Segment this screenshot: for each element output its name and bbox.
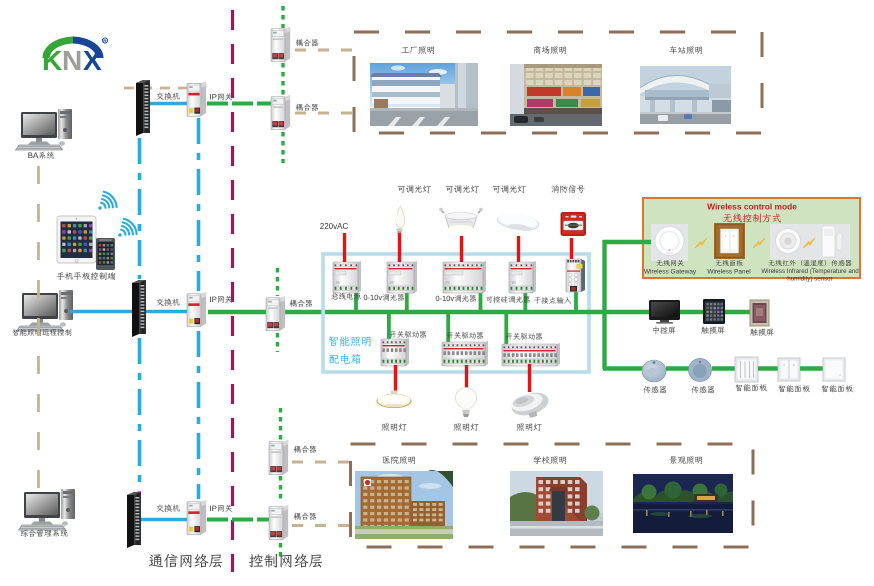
svg-text:Wireless Panel: Wireless Panel bbox=[707, 269, 751, 276]
svg-text:humidity) sensor: humidity) sensor bbox=[787, 276, 832, 283]
svg-text:N: N bbox=[62, 45, 82, 76]
svg-text:Wireless Gateway: Wireless Gateway bbox=[644, 269, 697, 276]
svg-text:Wireless Infrared (Temperature: Wireless Infrared (Temperature and bbox=[761, 268, 859, 275]
svg-text:K: K bbox=[42, 45, 62, 76]
svg-text:R: R bbox=[103, 38, 107, 44]
svg-text:220vAC: 220vAC bbox=[320, 222, 349, 231]
svg-text:Wireless control mode: Wireless control mode bbox=[707, 202, 797, 212]
svg-text:X: X bbox=[83, 45, 102, 76]
